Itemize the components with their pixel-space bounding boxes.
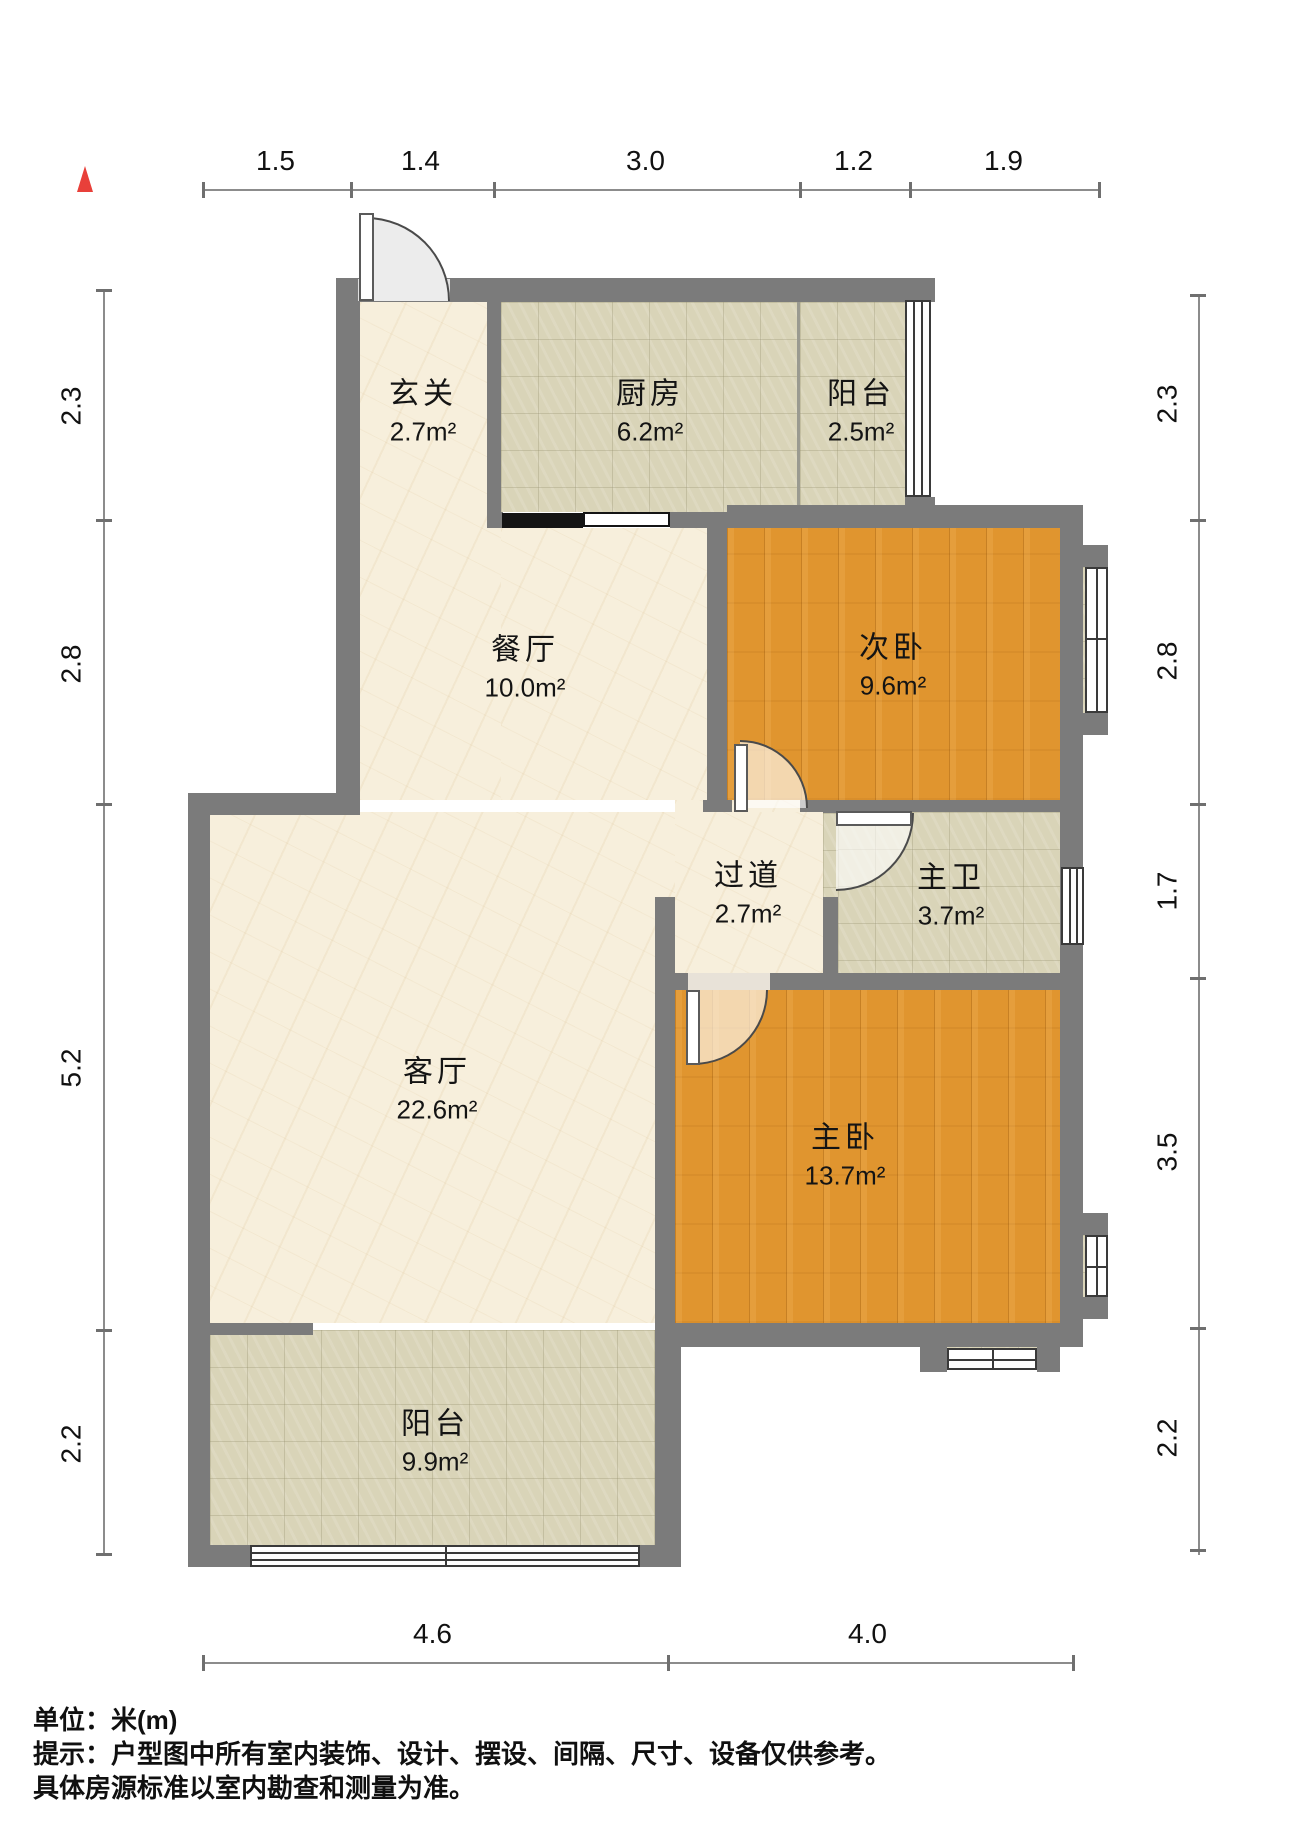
room-area: 2.7m² [714,899,782,930]
dim-tick [1190,519,1206,522]
dim-line-bottom [203,1662,1074,1664]
wall-balcony-cap-east [640,1545,681,1567]
room-label-corridor: 过道 2.7m² [714,851,782,930]
dim-tick [1072,1655,1075,1671]
dim-right-2: 1.7 [1151,872,1183,911]
dim-tick [909,182,912,198]
bedroom2-door-leaf [734,744,748,812]
dim-tick [202,1655,205,1671]
dim-left-0: 2.3 [55,387,87,426]
room-name: 主卫 [917,853,985,897]
dim-line-top [203,189,1100,191]
dim-tick [1190,1549,1206,1552]
wall-platform-cap-east [1037,1347,1060,1372]
room-label-bedroom2: 次卧 9.6m² [859,623,927,702]
dim-right-1: 2.8 [1151,642,1183,681]
dim-tick [202,182,205,198]
dim-tick [350,182,353,198]
room-name: 次卧 [859,623,927,667]
room-area: 13.7m² [805,1161,886,1192]
wall-balcony-divider [210,1323,313,1335]
wall-corridor-stub [655,897,675,977]
entry-door-swing [366,217,450,301]
room-name: 餐厅 [485,625,566,669]
room-area: 2.5m² [827,417,895,448]
wall-kitchen-bottom-west [487,512,503,528]
dim-tick [1190,803,1206,806]
room-label-bath: 主卫 3.7m² [917,853,985,932]
wall-master-left [655,973,675,1347]
dim-top-2: 3.0 [626,145,665,177]
master-bath-window [1061,867,1084,945]
room-area: 3.7m² [917,901,985,932]
room-name: 主卧 [805,1113,886,1157]
dim-tick [96,289,112,292]
dim-tick [493,182,496,198]
dim-left-3: 2.2 [55,1425,87,1464]
dim-tick [1190,294,1206,297]
dim-bottom-1: 4.0 [848,1618,887,1650]
dim-left-1: 2.8 [55,645,87,684]
room-area: 10.0m² [485,673,566,704]
room-name: 过道 [714,851,782,895]
balcony-top-window [905,300,931,497]
room-label-balcony-top: 阳台 2.5m² [827,369,895,448]
kitchen-sliding-track [502,513,583,528]
dim-top-3: 1.2 [834,145,873,177]
wall-entry-left [336,278,360,815]
room-label-kitchen: 厨房 6.2m² [616,369,684,448]
wall-balcony-right [655,1323,681,1567]
kitchen-balcony-divider [797,302,800,512]
room-label-living: 客厅 22.6m² [397,1047,478,1126]
entry-door-leaf [359,213,374,301]
footer-note2: 具体房源标准以室内勘查和测量为准。 [33,1768,475,1805]
footer-unit: 单位：米(m) [33,1700,177,1737]
room-name: 玄关 [389,369,457,413]
wall-master-bottom [655,1323,1083,1347]
room-label-dining: 餐厅 10.0m² [485,625,566,704]
wall-platform-cap-west [920,1347,947,1372]
dim-tick [667,1655,670,1671]
wall-bay1-cap-bottom [1060,1297,1108,1319]
dim-tick [96,803,112,806]
dim-tick [96,1329,112,1332]
wall-bay1-cap-top [1060,1213,1108,1235]
wall-balcony-cap-west [188,1545,250,1567]
room-name: 客厅 [397,1047,478,1091]
room-area: 22.6m² [397,1095,478,1126]
wall-bay2-cap-bottom [1060,713,1108,735]
dim-line-left [103,290,105,1556]
dim-line-right [1198,295,1200,1555]
dim-tick [96,1553,112,1556]
room-area: 9.6m² [859,671,927,702]
dim-top-0: 1.5 [256,145,295,177]
master-door-leaf [686,990,700,1065]
second-bedroom-bay-window [1085,567,1108,713]
dim-top-1: 1.4 [401,145,440,177]
room-area: 2.7m² [389,417,457,448]
wall-step [188,793,360,815]
dim-right-0: 2.3 [1151,385,1183,424]
bath-door-leaf [836,811,912,826]
room-label-balcony-bottom: 阳台 9.9m² [401,1399,469,1478]
room-name: 阳台 [827,369,895,413]
dim-tick [1190,977,1206,980]
room-name: 厨房 [616,369,684,413]
wall-entry-kitchen [487,302,501,515]
room-area: 6.2m² [616,417,684,448]
room-name: 阳台 [401,1399,469,1443]
floor-plan-canvas: 1.5 1.4 3.0 1.2 1.9 2.3 2.8 5.2 2.2 2.3 … [0,0,1297,1846]
balcony-bottom-window [250,1545,640,1567]
dim-tick [799,182,802,198]
dim-right-4: 2.2 [1151,1419,1183,1458]
room-label-entry: 玄关 2.7m² [389,369,457,448]
dim-right-3: 3.5 [1151,1133,1183,1172]
wall-balcony-top-corner [905,497,935,512]
footer-note: 提示：户型图中所有室内装饰、设计、摆设、间隔、尺寸、设备仅供参考。 [33,1734,891,1771]
south-platform-window [947,1348,1037,1370]
master-doorway-sill [688,973,770,990]
dim-tick [1098,182,1101,198]
room-area: 9.9m² [401,1447,469,1478]
dim-bottom-0: 4.6 [413,1618,452,1650]
dim-left-2: 5.2 [55,1049,87,1088]
room-label-master: 主卧 13.7m² [805,1113,886,1192]
dim-tick [96,519,112,522]
dim-tick [1190,1327,1206,1330]
dim-top-4: 1.9 [984,145,1023,177]
wall-left-lower [188,793,210,1567]
master-bedroom-bay-window [1085,1235,1108,1297]
wall-bay2-cap-top [1060,545,1108,567]
north-arrow-icon [77,166,93,192]
kitchen-sliding-panel [583,512,670,527]
wall-bedroom2-left [707,512,727,812]
